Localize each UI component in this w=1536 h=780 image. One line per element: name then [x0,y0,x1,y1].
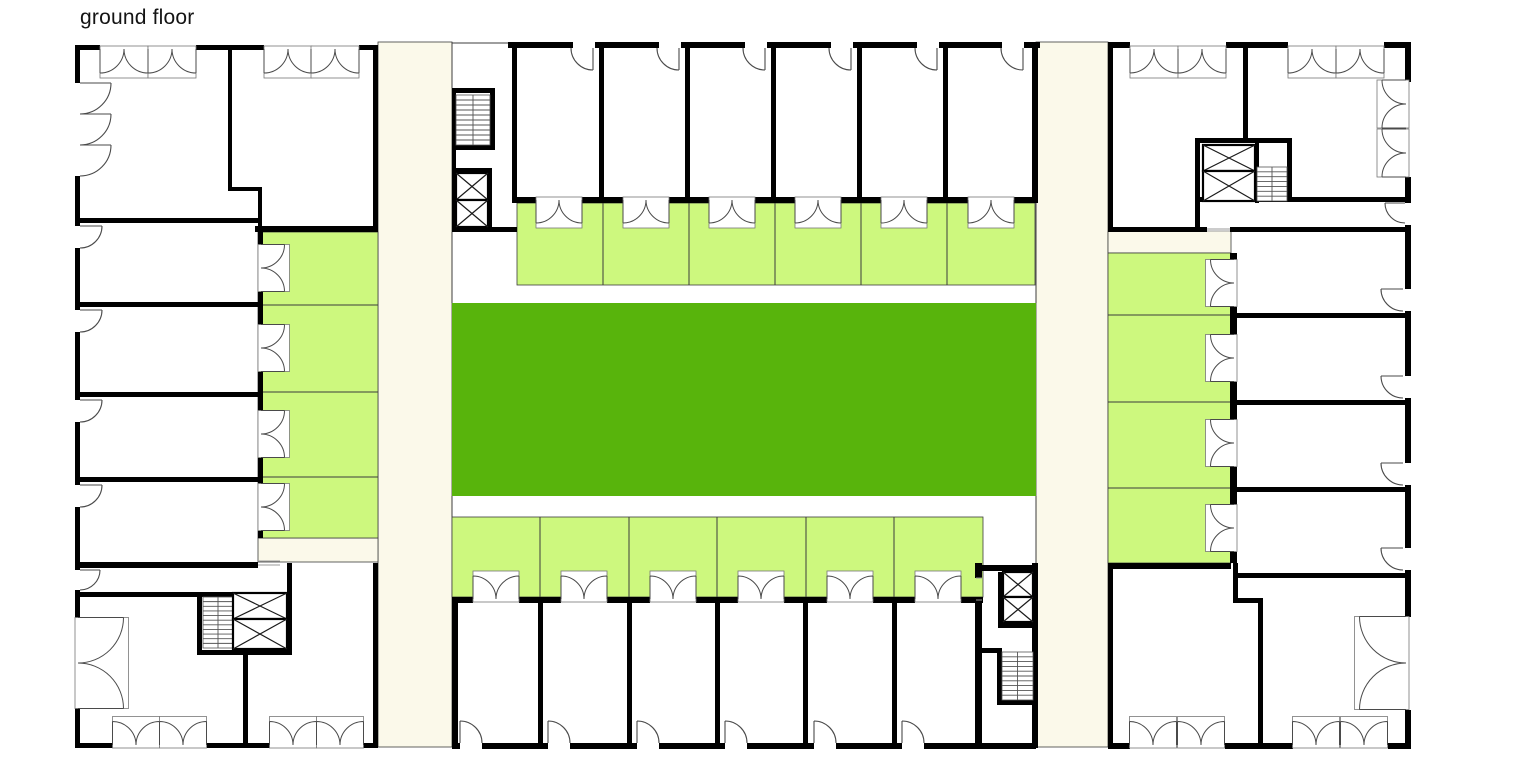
wall [452,88,490,93]
wall [1200,138,1290,143]
wall [1108,42,1113,232]
wall [228,45,232,187]
door-swing-icon [80,226,102,248]
wall [836,743,902,749]
wall [841,197,882,203]
wall [627,603,632,745]
wall [75,332,80,400]
courtyard-area [452,303,1036,496]
wall [978,648,1002,653]
street-area [1036,42,1108,747]
wall [197,597,202,655]
wall [452,597,458,748]
door-swing-icon [915,48,937,70]
wall [255,226,378,232]
wall [873,597,915,603]
wall [258,372,263,411]
wall [452,743,460,749]
wall [519,597,561,603]
wall [75,477,258,482]
door-swing-icon [829,48,851,70]
wall [1230,552,1237,563]
wall [1230,313,1410,318]
door-swing-icon [1381,548,1403,570]
wall [1230,400,1410,405]
door-swing-icon [80,145,111,176]
wall [512,42,517,203]
door-swing-icon [725,721,747,743]
wall [681,42,745,48]
wall [1230,467,1237,505]
door-swing-icon [902,721,924,743]
wall [1108,743,1130,749]
wall [490,88,495,150]
wall [75,392,258,397]
terrace-area [517,203,1035,285]
wall [696,597,738,603]
wall [1405,225,1411,289]
wall [939,42,1002,48]
wall [75,218,258,223]
wall [1230,487,1410,492]
wall [197,650,292,655]
wall [482,743,548,749]
wall [747,743,814,749]
wall [975,565,1037,571]
wall [508,42,573,48]
wall [1405,710,1411,748]
wall [363,743,378,748]
wall [927,197,968,203]
wall [1405,485,1411,548]
wall [1032,42,1038,203]
floor-plan-page: ground floor [0,0,1536,780]
wall [75,45,80,83]
wall [75,248,80,310]
wall [1230,253,1237,260]
wall [512,197,536,203]
wall [685,48,690,197]
wall [767,42,831,48]
street-area [258,538,378,562]
door-swing-icon [80,83,111,114]
wall [258,292,263,325]
wall [853,42,917,48]
door-swing-icon [80,310,102,332]
wall [607,597,650,603]
wall [1405,398,1411,463]
wall [75,507,80,570]
wall [75,302,258,307]
door-swing-icon [1385,203,1405,223]
door-swing-icon [80,114,111,145]
door-swing-icon [80,570,100,590]
door-swing-icon [814,721,836,743]
wall [452,168,492,172]
wall [1258,603,1263,745]
wall [595,42,659,48]
wall [771,48,776,197]
wall [1287,138,1292,202]
wall [1405,42,1411,82]
door-swing-icon [637,721,659,743]
street-area [378,42,452,747]
wall [892,603,897,745]
door-swing-icon [1381,463,1403,485]
street-area [1108,231,1231,253]
wall [207,743,270,748]
wall [1108,227,1207,232]
wall [669,197,710,203]
door-swing-icon [1381,376,1403,398]
wall [75,562,258,568]
wall [857,48,862,197]
plan-title: ground floor [80,6,194,30]
wall [570,743,637,749]
wall [538,603,543,745]
wall [1405,311,1411,376]
door-swing-icon [743,48,765,70]
wall [258,232,263,245]
wall [599,48,604,197]
wall [1108,563,1231,569]
door-swing-icon [80,400,102,422]
wall [258,531,263,538]
wall [1233,598,1263,603]
wall [997,700,1037,705]
wall [803,603,808,745]
floor-plan-drawing [0,0,1536,780]
wall [75,422,80,485]
wall [784,597,827,603]
wall [1108,563,1113,748]
door-swing-icon [1001,48,1023,70]
wall [75,743,113,748]
wall [258,458,263,484]
wall [1195,138,1200,232]
wall [975,600,982,748]
wall [456,145,495,150]
wall [1388,743,1411,749]
wall [1243,42,1248,138]
wall [997,648,1002,705]
wall [75,708,80,748]
wall [1014,197,1038,203]
wall [258,187,262,232]
wall [998,623,1037,628]
door-swing-icon [1381,289,1403,311]
wall [1230,227,1410,232]
wall [228,187,262,191]
wall [1230,307,1237,335]
door-swing-icon [80,485,102,507]
wall [1233,563,1238,603]
wall [1233,573,1410,578]
wall [715,603,720,745]
wall [943,48,948,197]
wall [659,743,725,749]
wall [582,197,624,203]
door-swing-icon [571,48,593,70]
door-swing-icon [548,721,570,743]
wall [243,655,248,748]
door-swing-icon [657,48,679,70]
wall [1226,42,1288,48]
door-swing-icon [460,721,482,743]
wall [373,563,378,748]
wall [755,197,796,203]
wall [373,45,378,232]
